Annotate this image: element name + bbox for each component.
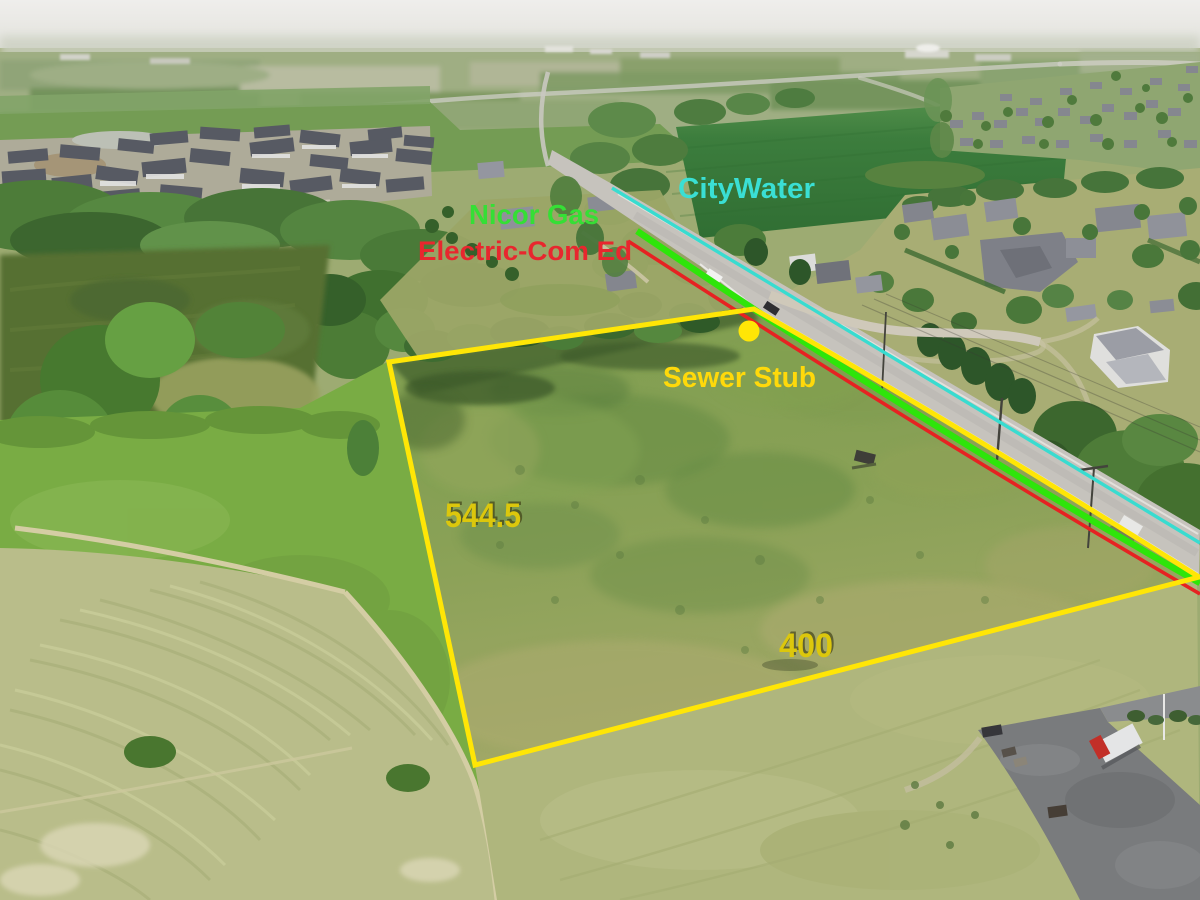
svg-text:CityWater: CityWater — [678, 173, 815, 205]
svg-text:400: 400 — [779, 627, 833, 665]
svg-text:Electric-Com Ed: Electric-Com Ed — [418, 236, 632, 266]
svg-text:Nicor Gas: Nicor Gas — [469, 199, 599, 230]
svg-text:Sewer Stub: Sewer Stub — [663, 362, 816, 394]
svg-text:544.5: 544.5 — [445, 497, 521, 535]
